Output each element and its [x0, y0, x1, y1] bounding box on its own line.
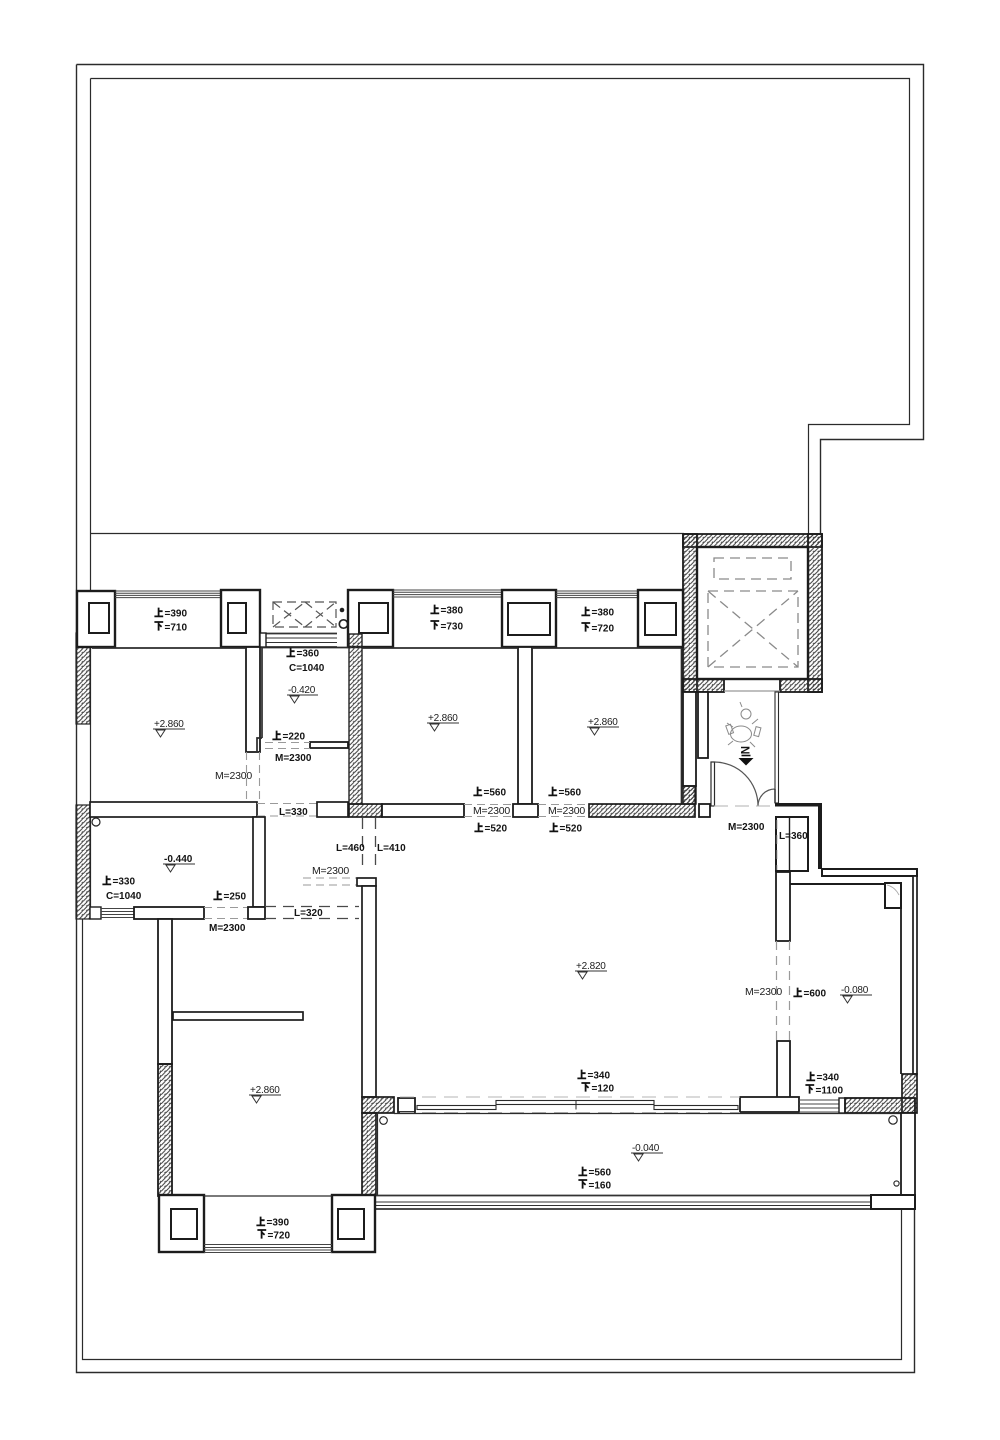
svg-text:=520: =520 — [560, 824, 583, 835]
svg-text:=360: =360 — [297, 649, 320, 660]
svg-text:M=2300: M=2300 — [275, 753, 312, 764]
svg-text:=120: =120 — [592, 1084, 615, 1095]
svg-text:=730: =730 — [441, 622, 464, 633]
svg-text:L=320: L=320 — [294, 908, 323, 919]
svg-text:=600: =600 — [804, 989, 827, 1000]
svg-text:-0.080: -0.080 — [841, 985, 869, 996]
svg-text:=560: =560 — [484, 788, 507, 799]
svg-text:+2.860: +2.860 — [428, 713, 458, 724]
svg-text:+2.820: +2.820 — [576, 961, 606, 972]
svg-text:=220: =220 — [283, 732, 306, 743]
svg-text:=390: =390 — [165, 609, 188, 620]
svg-text:+2.860: +2.860 — [154, 719, 184, 730]
svg-text:M=2300: M=2300 — [215, 770, 252, 782]
svg-text:-0.040: -0.040 — [632, 1143, 660, 1154]
svg-text:=380: =380 — [441, 606, 464, 617]
svg-text:=1100: =1100 — [816, 1086, 844, 1097]
svg-text:N: N — [738, 746, 750, 754]
svg-text:=560: =560 — [559, 788, 582, 799]
svg-text:=250: =250 — [224, 892, 247, 903]
svg-text:L=360: L=360 — [779, 831, 808, 842]
svg-text:M=2300: M=2300 — [548, 805, 585, 817]
svg-text:=720: =720 — [592, 624, 615, 635]
svg-text:=710: =710 — [165, 623, 188, 634]
svg-text:+2.860: +2.860 — [250, 1085, 280, 1096]
svg-text:=330: =330 — [113, 877, 136, 888]
svg-text:C=1040: C=1040 — [289, 663, 325, 674]
svg-text:C=1040: C=1040 — [106, 891, 142, 902]
svg-text:-0.440: -0.440 — [164, 854, 193, 865]
svg-text:L=460: L=460 — [336, 843, 365, 854]
svg-text:=340: =340 — [817, 1073, 840, 1084]
svg-text:=160: =160 — [589, 1181, 612, 1192]
svg-text:M=2300: M=2300 — [312, 865, 349, 877]
svg-text:=520: =520 — [485, 824, 508, 835]
svg-text:L=330: L=330 — [279, 807, 308, 818]
svg-text:M=2300: M=2300 — [728, 822, 765, 833]
svg-text:=560: =560 — [589, 1168, 612, 1179]
svg-text:M=2300: M=2300 — [473, 805, 510, 817]
svg-text:=720: =720 — [268, 1231, 291, 1242]
svg-text:=340: =340 — [588, 1071, 611, 1082]
svg-text:=380: =380 — [592, 608, 615, 619]
svg-text:M=2300: M=2300 — [745, 986, 782, 998]
svg-text:L=410: L=410 — [377, 843, 406, 854]
svg-text:=390: =390 — [267, 1218, 290, 1229]
svg-text:-0.420: -0.420 — [288, 685, 316, 696]
svg-text:M=2300: M=2300 — [209, 923, 246, 934]
svg-text:+2.860: +2.860 — [588, 717, 618, 728]
